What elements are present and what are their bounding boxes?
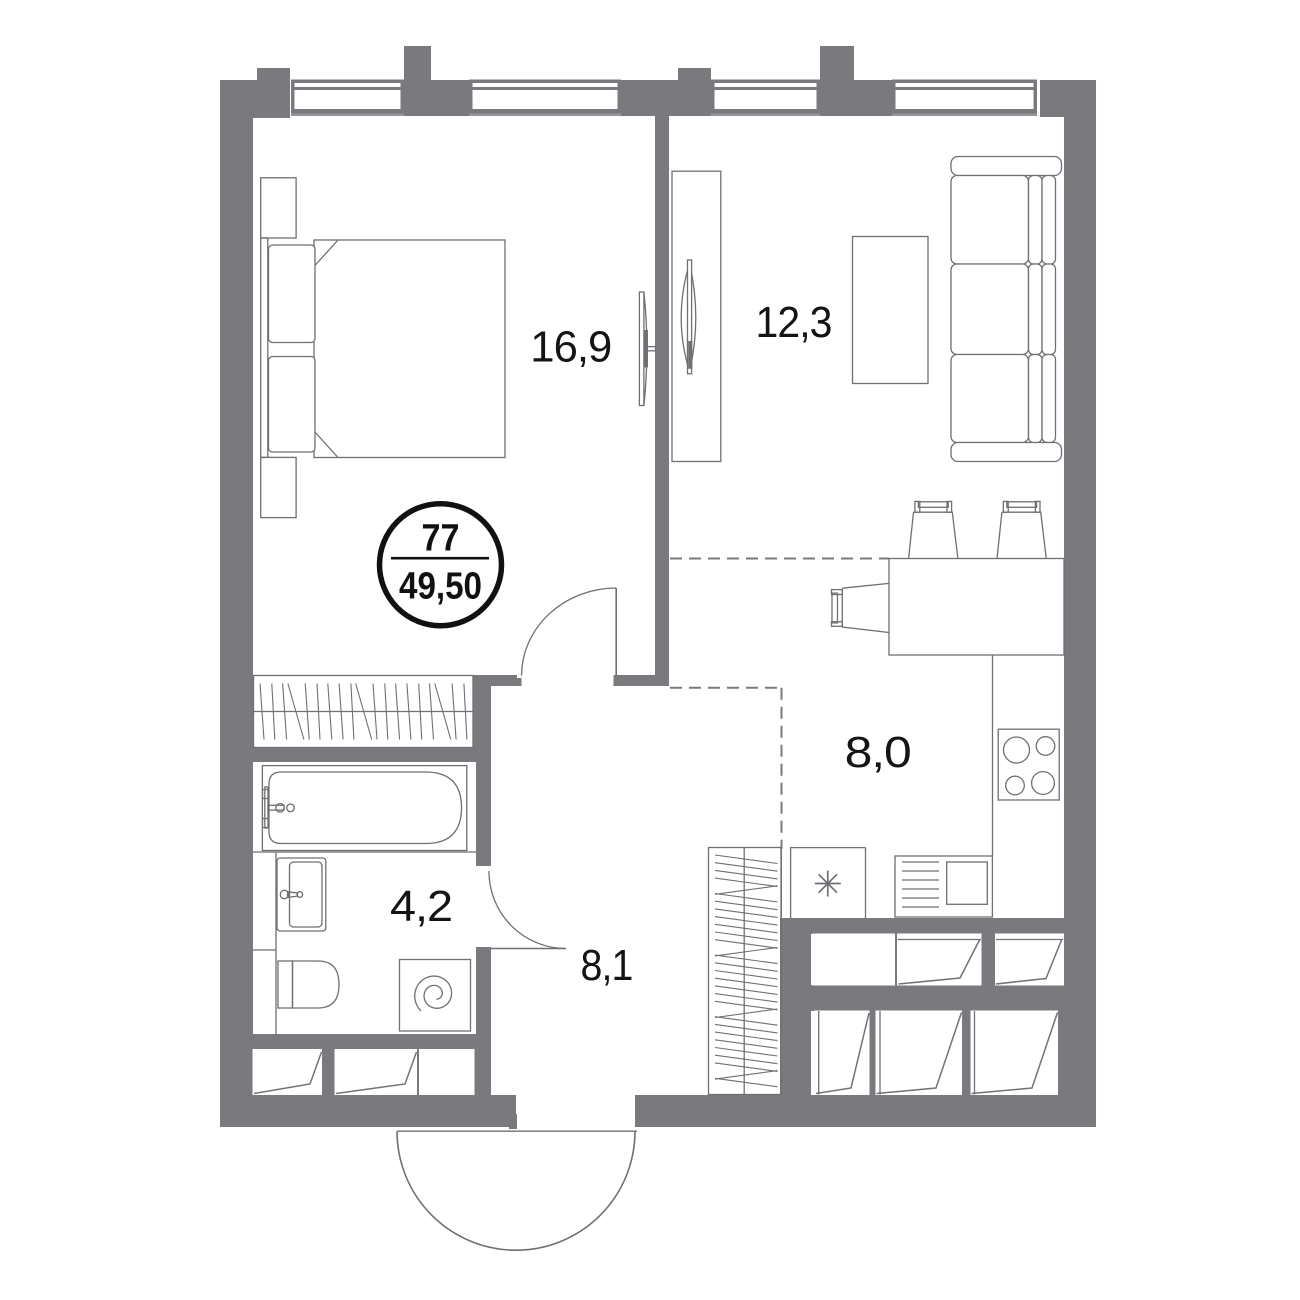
svg-text:16,9: 16,9 <box>530 323 611 372</box>
svg-text:77: 77 <box>422 518 460 560</box>
svg-text:4,2: 4,2 <box>390 882 452 931</box>
svg-text:49,50: 49,50 <box>399 566 482 608</box>
svg-text:8,1: 8,1 <box>581 941 633 990</box>
svg-text:12,3: 12,3 <box>756 298 832 347</box>
svg-text:8,0: 8,0 <box>845 728 911 777</box>
